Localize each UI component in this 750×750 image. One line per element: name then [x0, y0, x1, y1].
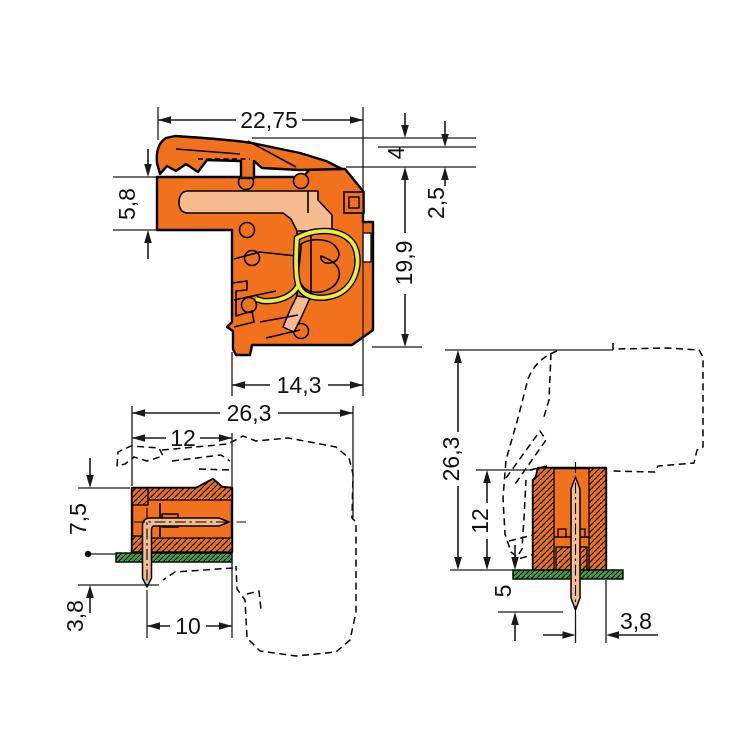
floor-notch-left — [558, 529, 566, 537]
pcb-side — [116, 553, 232, 562]
dim-label-header-depth: 12 — [170, 425, 196, 451]
header-front-left-wall-hatch — [533, 468, 554, 570]
dim-side-body-height: 19,9 — [372, 180, 422, 347]
header-left-top-hatch — [132, 488, 148, 505]
dim-label-pin-below-board: 5 — [490, 585, 516, 598]
dim-label-latch-offset: 2,5 — [423, 187, 449, 219]
dim-label-upper-body-height: 5,8 — [114, 188, 140, 220]
dim-label-pin-to-edge: 3,8 — [620, 608, 652, 634]
dim-side-width-bottom: 14,3 — [232, 352, 363, 398]
dim-label-pin-to-face: 10 — [175, 613, 201, 639]
dim-label-total-depth: 26,3 — [227, 400, 272, 426]
dim-side-latch-offset: 2,5 — [423, 121, 449, 219]
dim-hside-pin-to-face: 10 — [147, 601, 232, 639]
keying-window-inner — [349, 197, 359, 208]
dim-label-latch-height: 4 — [383, 146, 409, 159]
dim-label-front-total-height: 26,3 — [438, 437, 464, 482]
dim-side-upper-body-height: 5,8 — [113, 149, 156, 259]
dim-dot-terminator — [85, 551, 91, 557]
dim-label-width-top: 22,75 — [240, 107, 298, 133]
dim-hside-header-depth: 12 — [132, 425, 232, 451]
housing-slot — [363, 233, 371, 262]
technical-drawing-page: 22,75 14,3 4 2,5 — [0, 0, 750, 750]
side-view: 22,75 14,3 4 2,5 — [113, 107, 476, 398]
header-front-view: 26,3 12 5 3,8 — [438, 343, 703, 643]
header-side-view: 26,3 12 7,5 3,8 1 — [62, 400, 356, 656]
connector-technical-drawing: 22,75 14,3 4 2,5 — [0, 0, 750, 750]
pcb-front — [513, 570, 623, 579]
dim-hside-pin-protrusion: 3,8 — [62, 585, 159, 632]
dim-label-front-header-height: 12 — [467, 508, 493, 534]
dim-label-width-bottom: 14,3 — [277, 372, 322, 398]
dim-hfront-header-height: 12 — [467, 470, 533, 570]
dim-label-pin-protrusion: 3,8 — [62, 600, 88, 632]
dim-label-header-height: 7,5 — [65, 503, 91, 535]
dim-label-body-height: 19,9 — [391, 241, 417, 286]
dim-hside-header-height: 7,5 — [65, 458, 130, 557]
header-front-right-wall-hatch — [589, 468, 606, 570]
